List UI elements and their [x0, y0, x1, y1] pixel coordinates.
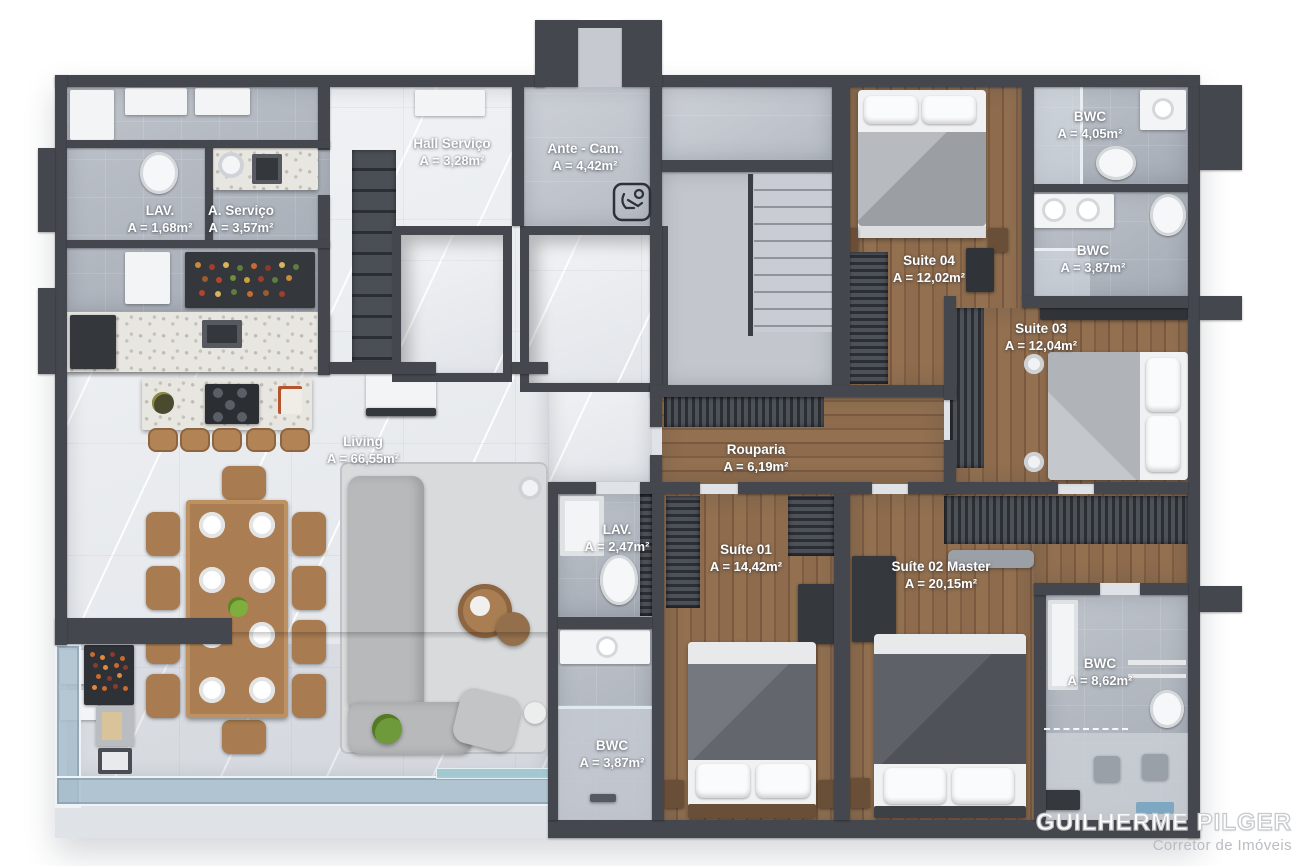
bwc2-sink — [1076, 198, 1100, 222]
wall-shaft-stub-right — [622, 20, 662, 87]
wall-top-right — [655, 75, 1200, 87]
wall-suite01-right — [834, 494, 850, 820]
plate — [249, 512, 275, 538]
rouparia-wardrobe — [664, 397, 824, 427]
room-label-bwc-4: BWC A = 3,87m² — [580, 737, 645, 771]
suite01-nightstand — [664, 780, 684, 808]
bar-stool — [212, 428, 242, 452]
room-area: A = 12,02m² — [893, 269, 965, 286]
room-label-a-servico: A. Serviço A = 3,57m² — [208, 202, 274, 236]
suite01-shoe-closet — [788, 496, 834, 556]
room-label-suite-03: Suite 03 A = 12,04m² — [1005, 320, 1077, 354]
bwc3-toilet — [1150, 690, 1184, 728]
counter-shadow — [67, 372, 330, 378]
plate — [249, 567, 275, 593]
wall-suite03-left — [944, 296, 956, 400]
room-area: A = 4,42m² — [547, 157, 622, 174]
room-name: BWC — [596, 738, 628, 753]
bwc3-shower-dashed-line — [1044, 728, 1128, 730]
bar-stool — [148, 428, 178, 452]
wall-antecam-left — [512, 87, 524, 226]
wall-lower-top — [548, 482, 596, 494]
suite04-tv-unit — [966, 248, 994, 292]
plate — [249, 677, 275, 703]
suite01-pillow — [756, 764, 810, 798]
grill-board — [102, 712, 122, 740]
room-label-suite-04: Suite 04 A = 12,02m² — [893, 252, 965, 286]
suite02-desk — [852, 556, 896, 642]
wall-stairs-right — [832, 87, 850, 385]
room-area: A = 2,47m² — [585, 538, 650, 555]
suite01-pillow — [696, 764, 750, 798]
dishwasher — [125, 252, 170, 304]
shaft-floor — [578, 28, 622, 87]
wall-lav2-bwc-divider — [558, 617, 652, 629]
suite02-pillow — [884, 768, 946, 804]
room-name: Suíte 02 Master — [891, 559, 990, 574]
bwc3-towel-bar — [1128, 674, 1186, 678]
suite04-pillow — [864, 96, 918, 124]
wall-right-stub — [1200, 296, 1242, 320]
bwc3-towel-bar — [1128, 660, 1186, 665]
dining-chair — [292, 512, 326, 556]
elevator-1 — [392, 226, 512, 382]
wall-hall-bottom — [512, 362, 548, 374]
wall-lower-top — [738, 482, 872, 494]
service-appliance — [70, 90, 114, 140]
wall-right-stub — [1200, 85, 1242, 170]
dining-chair — [292, 620, 326, 664]
wall-suite02-right — [1034, 583, 1046, 820]
wall-left-stub — [38, 148, 55, 232]
bwc4-shower-glass — [558, 706, 652, 709]
wall-suite01-left — [652, 494, 664, 820]
dining-chair — [292, 674, 326, 718]
plate — [199, 512, 225, 538]
suite02-wardrobe — [944, 496, 1188, 544]
room-name: LAV. — [146, 203, 175, 218]
wall-bwc3-top — [1140, 583, 1188, 595]
room-name: BWC — [1077, 243, 1109, 258]
staircase-steps — [754, 174, 832, 332]
dining-chair — [146, 566, 180, 610]
room-area: A = 66,55m² — [327, 450, 399, 467]
wall-left-stub — [38, 288, 55, 374]
cutting-board — [278, 386, 302, 414]
room-label-bwc-2: BWC A = 3,87m² — [1061, 242, 1126, 276]
bar-stool — [180, 428, 210, 452]
dining-chair — [222, 466, 266, 500]
room-name: Living — [343, 434, 383, 449]
table-plant — [228, 597, 248, 617]
service-counter-2 — [195, 88, 250, 115]
balcony-glass-front — [55, 776, 557, 806]
room-label-living: Living A = 66,55m² — [327, 433, 399, 467]
bar-stool — [280, 428, 310, 452]
room-label-lav-1: LAV. A = 1,68m² — [128, 202, 193, 236]
lav1-toilet — [140, 152, 178, 194]
room-name: BWC — [1074, 109, 1106, 124]
suite01-closet — [666, 496, 700, 608]
coffee-table-small — [496, 612, 530, 646]
room-name: Rouparia — [727, 442, 786, 457]
suite02-blanket-fold — [874, 634, 1026, 654]
wall-lav2-left — [548, 494, 558, 820]
room-name: Suíte 01 — [720, 542, 772, 557]
room-area: A = 1,68m² — [128, 219, 193, 236]
suite01-headboard — [688, 804, 816, 818]
suite02-blanket — [874, 654, 1026, 764]
aservico-sink — [252, 154, 282, 184]
bar-stool — [246, 428, 276, 452]
dining-chair — [146, 674, 180, 718]
wall-suite03-top — [1022, 296, 1188, 308]
wall-stairs-top — [662, 160, 832, 172]
room-area: A = 14,42m² — [710, 558, 782, 575]
balcony-wall — [55, 618, 232, 644]
room-name: Suite 04 — [903, 253, 955, 268]
floor-lamp — [518, 476, 542, 500]
dining-chair — [222, 720, 266, 754]
wall-lower-top — [1094, 482, 1188, 494]
wall-shaft-stub-left — [535, 20, 578, 87]
wall-lower-top — [908, 482, 1058, 494]
room-label-suite-02-master: Suíte 02 Master A = 20,15m² — [891, 558, 990, 592]
sliding-glass-door — [436, 768, 550, 779]
plate — [199, 677, 225, 703]
room-area: A = 3,87m² — [1061, 259, 1126, 276]
wall-right — [1188, 87, 1200, 838]
hall-closet — [352, 150, 396, 364]
suite03-pillow — [1146, 416, 1180, 472]
tv-panel-edge — [366, 408, 436, 416]
shaft-top-edge — [578, 20, 622, 28]
tray — [470, 596, 490, 616]
suite01-tv-cabinet — [798, 584, 836, 644]
pantry-bottles — [195, 262, 201, 268]
suite04-pillow — [922, 96, 976, 124]
bwc2-sink — [1042, 198, 1066, 222]
washer — [218, 152, 244, 178]
suite01-blanket-fold — [688, 642, 816, 664]
watermark: GUILHERME PILGER Corretor de Imóveis — [1036, 809, 1292, 854]
room-area: A = 8,62m² — [1068, 672, 1133, 689]
grill-charcoal — [90, 652, 95, 657]
room-label-ante-cam: Ante - Cam. A = 4,42m² — [547, 140, 622, 174]
hall-cabinet — [415, 90, 485, 116]
bwc2-toilet — [1150, 194, 1186, 236]
suite02-nightstand — [850, 778, 870, 808]
wall-service-inner — [67, 140, 330, 148]
wall-suite04-right — [1022, 87, 1034, 298]
bwc1-toilet — [1096, 146, 1136, 180]
wall-bwc3-top — [1034, 583, 1100, 595]
room-name: Suite 03 — [1015, 321, 1067, 336]
room-area: A = 4,05m² — [1058, 125, 1123, 142]
suite04-wardrobe — [844, 252, 888, 384]
watermark-title: GUILHERME PILGER — [1036, 809, 1292, 837]
room-area: A = 20,15m² — [891, 575, 990, 592]
plate — [199, 567, 225, 593]
fruit-bowl — [152, 392, 174, 414]
sofa-main — [348, 476, 424, 712]
bwc1-sink — [1152, 98, 1174, 120]
kitchen-sink — [202, 320, 242, 348]
room-name: LAV. — [603, 522, 632, 537]
wall-right-stub — [1200, 586, 1242, 612]
wall-service-right — [318, 195, 330, 375]
entry-floor — [662, 87, 832, 160]
shower-bench — [1040, 790, 1080, 810]
room-name: Ante - Cam. — [547, 141, 622, 156]
suite03-blanket — [1048, 352, 1140, 480]
room-label-bwc-1: BWC A = 4,05m² — [1058, 108, 1123, 142]
side-table — [524, 702, 546, 724]
floor-plan-render: Hall Serviço A = 3,28m² Ante - Cam. A = … — [0, 0, 1300, 866]
pantry-rack — [185, 252, 315, 308]
balcony-sink — [98, 748, 132, 774]
room-area: A = 6,19m² — [724, 458, 789, 475]
shower-stool — [1142, 754, 1168, 780]
service-counter-1 — [125, 88, 187, 115]
ante-cam-access-icon — [612, 182, 652, 222]
suite02-pillow — [952, 768, 1014, 804]
floor-plant — [372, 714, 402, 744]
suite03-pillow — [1146, 358, 1180, 412]
suite01-blanket — [688, 664, 816, 760]
suite03-side-table — [1024, 452, 1044, 472]
wall-service-mid — [67, 240, 330, 248]
suite04-blanket-fold — [858, 226, 986, 238]
watermark-subtitle: Corretor de Imóveis — [1036, 837, 1292, 854]
wall-lower-top — [640, 482, 700, 494]
bwc4-drain — [590, 794, 616, 802]
shower-stool — [1094, 756, 1120, 782]
wall-rouparia-left — [650, 397, 662, 427]
room-label-suite-01: Suíte 01 A = 14,42m² — [710, 541, 782, 575]
room-label-lav-2: LAV. A = 2,47m² — [585, 521, 650, 555]
room-label-bwc-3: BWC A = 8,62m² — [1068, 655, 1133, 689]
suite03-side-table — [1024, 354, 1044, 374]
wall-bwc-divider — [1034, 184, 1188, 192]
room-label-hall-servico: Hall Serviço A = 3,28m² — [413, 135, 490, 169]
room-name: A. Serviço — [208, 203, 274, 218]
suite04-blanket — [858, 132, 986, 226]
fridge — [70, 315, 116, 369]
room-area: A = 3,28m² — [413, 152, 490, 169]
room-label-rouparia: Rouparia A = 6,19m² — [724, 441, 789, 475]
suite02-headboard — [874, 806, 1026, 818]
wall-stairs-left — [650, 87, 662, 397]
room-name: Hall Serviço — [413, 136, 490, 151]
wall-left — [55, 75, 67, 645]
wall-hall-bottom — [330, 362, 436, 374]
dining-chair — [292, 566, 326, 610]
lav2-shelf — [640, 494, 652, 616]
cooktop-burners — [213, 388, 223, 398]
bwc4-sink — [596, 636, 618, 658]
room-area: A = 12,04m² — [1005, 337, 1077, 354]
lav2-toilet — [600, 555, 638, 605]
dining-chair — [146, 512, 180, 556]
room-name: BWC — [1084, 656, 1116, 671]
wall-suite04-bottom — [650, 385, 956, 397]
staircase-railing — [748, 174, 753, 336]
room-area: A = 3,57m² — [208, 219, 274, 236]
wall-top-left — [55, 75, 545, 87]
room-area: A = 3,87m² — [580, 754, 645, 771]
